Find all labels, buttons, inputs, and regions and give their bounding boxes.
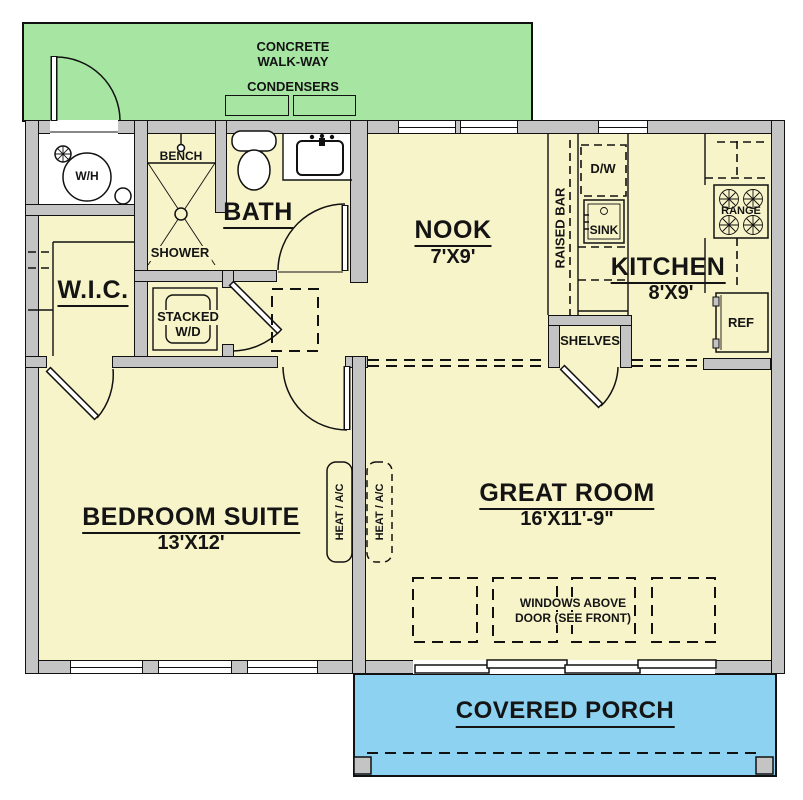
- great-room-dimensions: 16'X11'-9": [520, 508, 614, 530]
- patio-door-panels: [415, 660, 716, 673]
- wic-door: [48, 369, 113, 418]
- toilet-icon: [232, 131, 276, 190]
- bath-label: BATH: [223, 198, 293, 229]
- heat-ac-left-label: HEAT / A/C: [334, 484, 346, 541]
- windows-note-line2: DOOR (SEE FRONT): [513, 612, 633, 625]
- floor-plan: CONCRETE WALK-WAY CONDENSERS W/H BENCH S…: [0, 0, 803, 800]
- bedroom-dimensions: 13'X12': [157, 532, 224, 554]
- bedroom-label: BEDROOM SUITE: [82, 503, 300, 534]
- covered-porch-label: COVERED PORCH: [456, 698, 675, 728]
- dishwasher-label: D/W: [590, 162, 615, 177]
- walkway-title-line2: WALK-WAY: [257, 55, 328, 70]
- stacked-wd-label-line2: W/D: [173, 325, 202, 340]
- windows-note-line1: WINDOWS ABOVE: [518, 597, 628, 610]
- front-door: [50, 56, 120, 132]
- sink-label: SINK: [590, 224, 619, 237]
- great-room-label: GREAT ROOM: [479, 479, 654, 510]
- raised-bar-label: RAISED BAR: [554, 188, 569, 269]
- range-label: RANGE: [721, 205, 761, 217]
- heat-ac-right-label: HEAT / A/C: [374, 484, 386, 541]
- stacked-wd-label-line1: STACKED: [155, 310, 221, 325]
- shelves-door: [562, 367, 618, 406]
- porch-posts: [354, 757, 773, 774]
- plan-linework: [0, 0, 803, 800]
- ceiling-break-line: [368, 360, 703, 366]
- kitchen-label: KITCHEN: [611, 253, 726, 284]
- shower-label: SHOWER: [149, 246, 212, 261]
- condensers-label: CONDENSERS: [247, 80, 339, 95]
- water-heater-label: W/H: [75, 170, 98, 183]
- kitchen-dimensions: 8'X9': [648, 282, 693, 304]
- bath-sink-icon: [283, 134, 352, 180]
- bedroom-door: [283, 366, 347, 430]
- wic-label: W.I.C.: [57, 276, 128, 307]
- refrigerator-label: REF: [728, 316, 754, 331]
- walkway-title-line1: CONCRETE: [257, 40, 330, 55]
- nook-dimensions: 7'X9': [430, 246, 475, 268]
- bench-label: BENCH: [160, 150, 203, 163]
- attic-access-dashed: [272, 289, 318, 351]
- shelves-label: SHELVES: [560, 334, 620, 349]
- nook-label: NOOK: [415, 216, 492, 247]
